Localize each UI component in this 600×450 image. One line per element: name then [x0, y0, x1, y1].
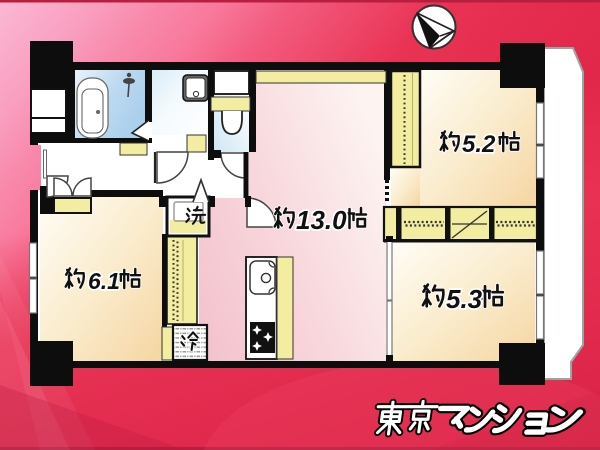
- svg-text:5.2: 5.2: [462, 131, 496, 158]
- svg-text:6.1: 6.1: [88, 268, 120, 294]
- svg-text:5.3: 5.3: [446, 284, 483, 314]
- svg-text:13.0: 13.0: [296, 205, 347, 235]
